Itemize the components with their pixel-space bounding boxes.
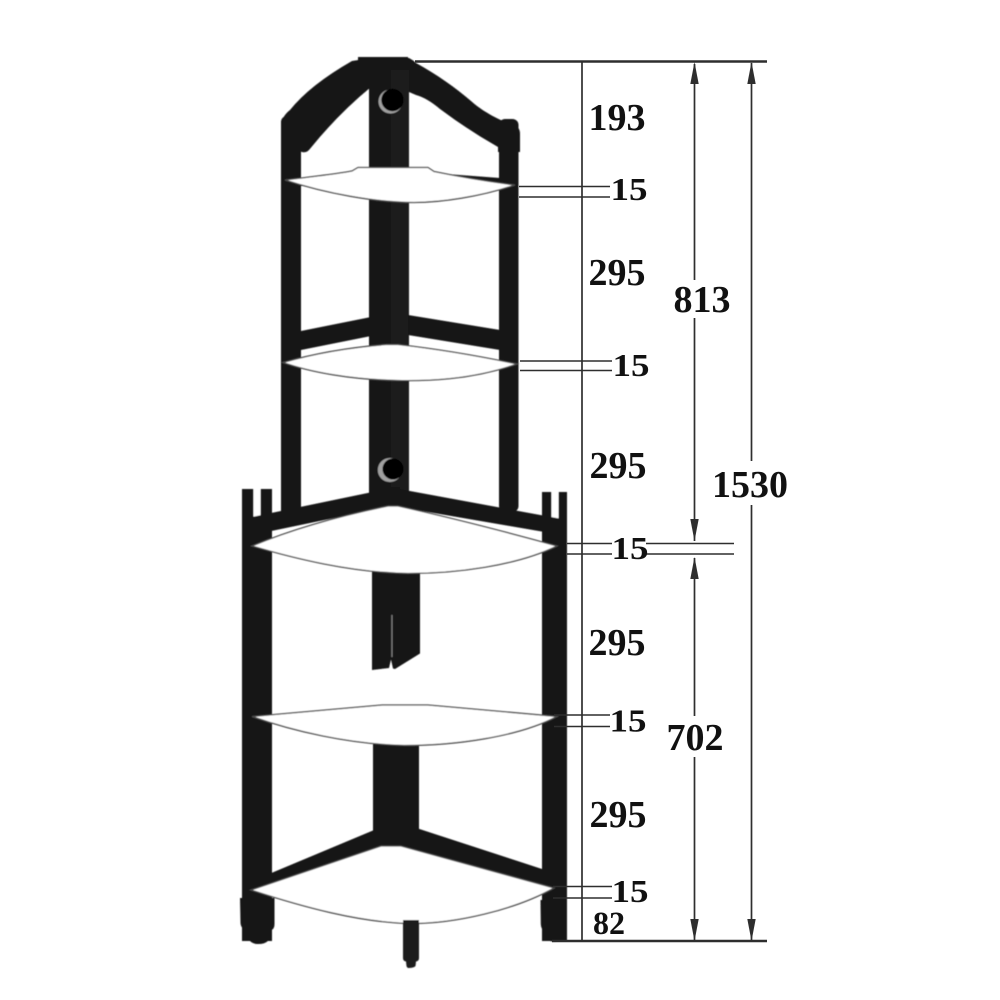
svg-text:15: 15 <box>611 171 648 207</box>
svg-text:295: 295 <box>589 252 646 294</box>
svg-text:1530: 1530 <box>712 464 788 506</box>
svg-text:295: 295 <box>589 622 646 664</box>
svg-text:15: 15 <box>610 703 647 739</box>
svg-text:813: 813 <box>674 279 731 321</box>
svg-text:295: 295 <box>590 445 647 487</box>
svg-text:193: 193 <box>589 97 646 139</box>
svg-text:295: 295 <box>590 794 647 836</box>
svg-text:702: 702 <box>667 717 724 759</box>
svg-text:15: 15 <box>612 873 649 909</box>
svg-text:15: 15 <box>613 347 650 383</box>
svg-text:15: 15 <box>612 530 649 566</box>
svg-text:82: 82 <box>593 906 625 942</box>
